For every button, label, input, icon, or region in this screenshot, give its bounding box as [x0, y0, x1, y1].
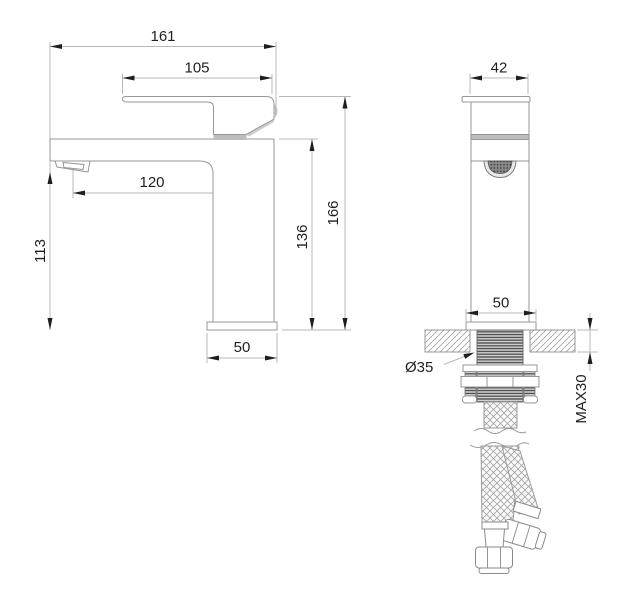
- dim-shank-diameter: Ø35: [405, 359, 433, 376]
- mounting-nut: [461, 377, 539, 388]
- supply-hoses: [470, 402, 547, 574]
- arrowhead: [343, 97, 348, 109]
- dim-body-height: 136: [294, 224, 311, 249]
- mounting-assembly: [425, 330, 575, 403]
- arrowhead: [48, 318, 53, 330]
- handle-gap-shadow: [214, 135, 247, 141]
- stud-cap-left: [463, 396, 477, 403]
- technical-drawing-page: 161 105 120 113 136 166 50: [0, 0, 631, 600]
- arrowhead: [588, 318, 593, 330]
- stud-cap-right: [524, 396, 538, 403]
- dim-base-depth: 50: [234, 339, 251, 356]
- supply-hose-upper: [484, 402, 517, 428]
- dim-base-width: 50: [493, 295, 510, 312]
- lever-handle-side: [123, 97, 275, 135]
- dim-body-width: 42: [491, 60, 508, 77]
- lever-handle-front: [462, 97, 530, 103]
- dim-outlet-height: 113: [32, 239, 49, 263]
- arrowhead: [73, 191, 85, 196]
- front-view-drawing: 42 50 Ø35 MAX30: [405, 60, 598, 574]
- fitting-lip-left: [479, 568, 509, 574]
- hose-tube-left: [485, 529, 505, 547]
- countertop-right-section: [530, 330, 575, 352]
- arrowhead: [264, 44, 276, 49]
- dim-line-105: [123, 74, 273, 94]
- side-view-dimension-lines: [48, 42, 352, 363]
- handle-end-shade: [274, 104, 277, 119]
- arrowhead: [48, 172, 53, 184]
- arrowhead: [310, 139, 315, 151]
- countertop-left-section: [425, 330, 470, 352]
- arrowhead: [588, 352, 593, 364]
- base-plate-side: [207, 322, 277, 330]
- hose-fitting-left: [476, 547, 513, 568]
- arrowhead: [343, 318, 348, 330]
- arrowhead: [470, 76, 482, 81]
- arrowhead: [463, 353, 474, 359]
- dim-total-length: 161: [150, 28, 175, 45]
- dim-max-mounting-thickness: MAX30: [573, 374, 590, 423]
- arrowhead: [260, 76, 272, 81]
- dim-spout-reach: 120: [139, 174, 164, 191]
- faucet-dimension-drawing: 161 105 120 113 136 166 50: [0, 0, 631, 600]
- arrowhead: [265, 356, 277, 361]
- dim-line-max30: [577, 313, 598, 371]
- hose-ferrule-left: [482, 522, 508, 529]
- side-view-drawing: 161 105 120 113 136 166 50: [32, 28, 351, 363]
- handle-block-front: [471, 102, 529, 135]
- arrowhead: [123, 76, 135, 81]
- arrowhead: [516, 76, 528, 81]
- faucet-side-profile: [50, 97, 277, 331]
- dim-handle-length: 105: [184, 60, 209, 77]
- dim-overall-height: 166: [325, 200, 342, 225]
- base-plate-front: [466, 322, 536, 330]
- mounting-washer: [463, 365, 537, 372]
- arrowhead: [524, 311, 536, 316]
- arrowhead: [310, 318, 315, 330]
- arrowhead: [207, 356, 219, 361]
- arrowhead: [50, 44, 62, 49]
- handle-gap-band: [471, 135, 529, 140]
